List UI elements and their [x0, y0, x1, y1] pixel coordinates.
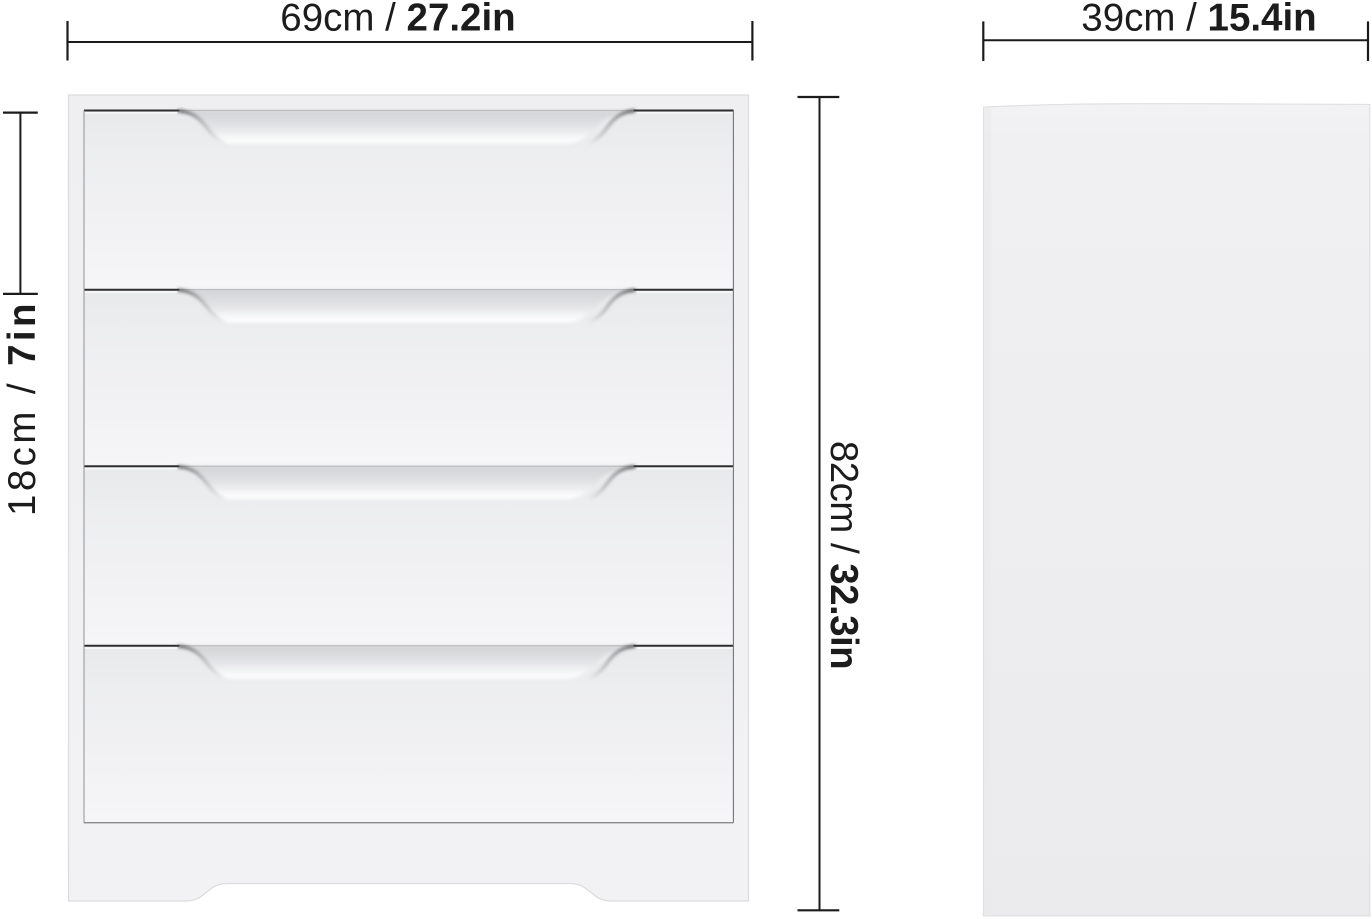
svg-text:82cm / 32.3in: 82cm / 32.3in — [822, 441, 865, 669]
svg-text:69cm / 27.2in: 69cm / 27.2in — [280, 0, 515, 40]
svg-text:39cm / 15.4in: 39cm / 15.4in — [1081, 0, 1316, 40]
svg-text:18cm / 7in: 18cm / 7in — [1, 300, 44, 516]
